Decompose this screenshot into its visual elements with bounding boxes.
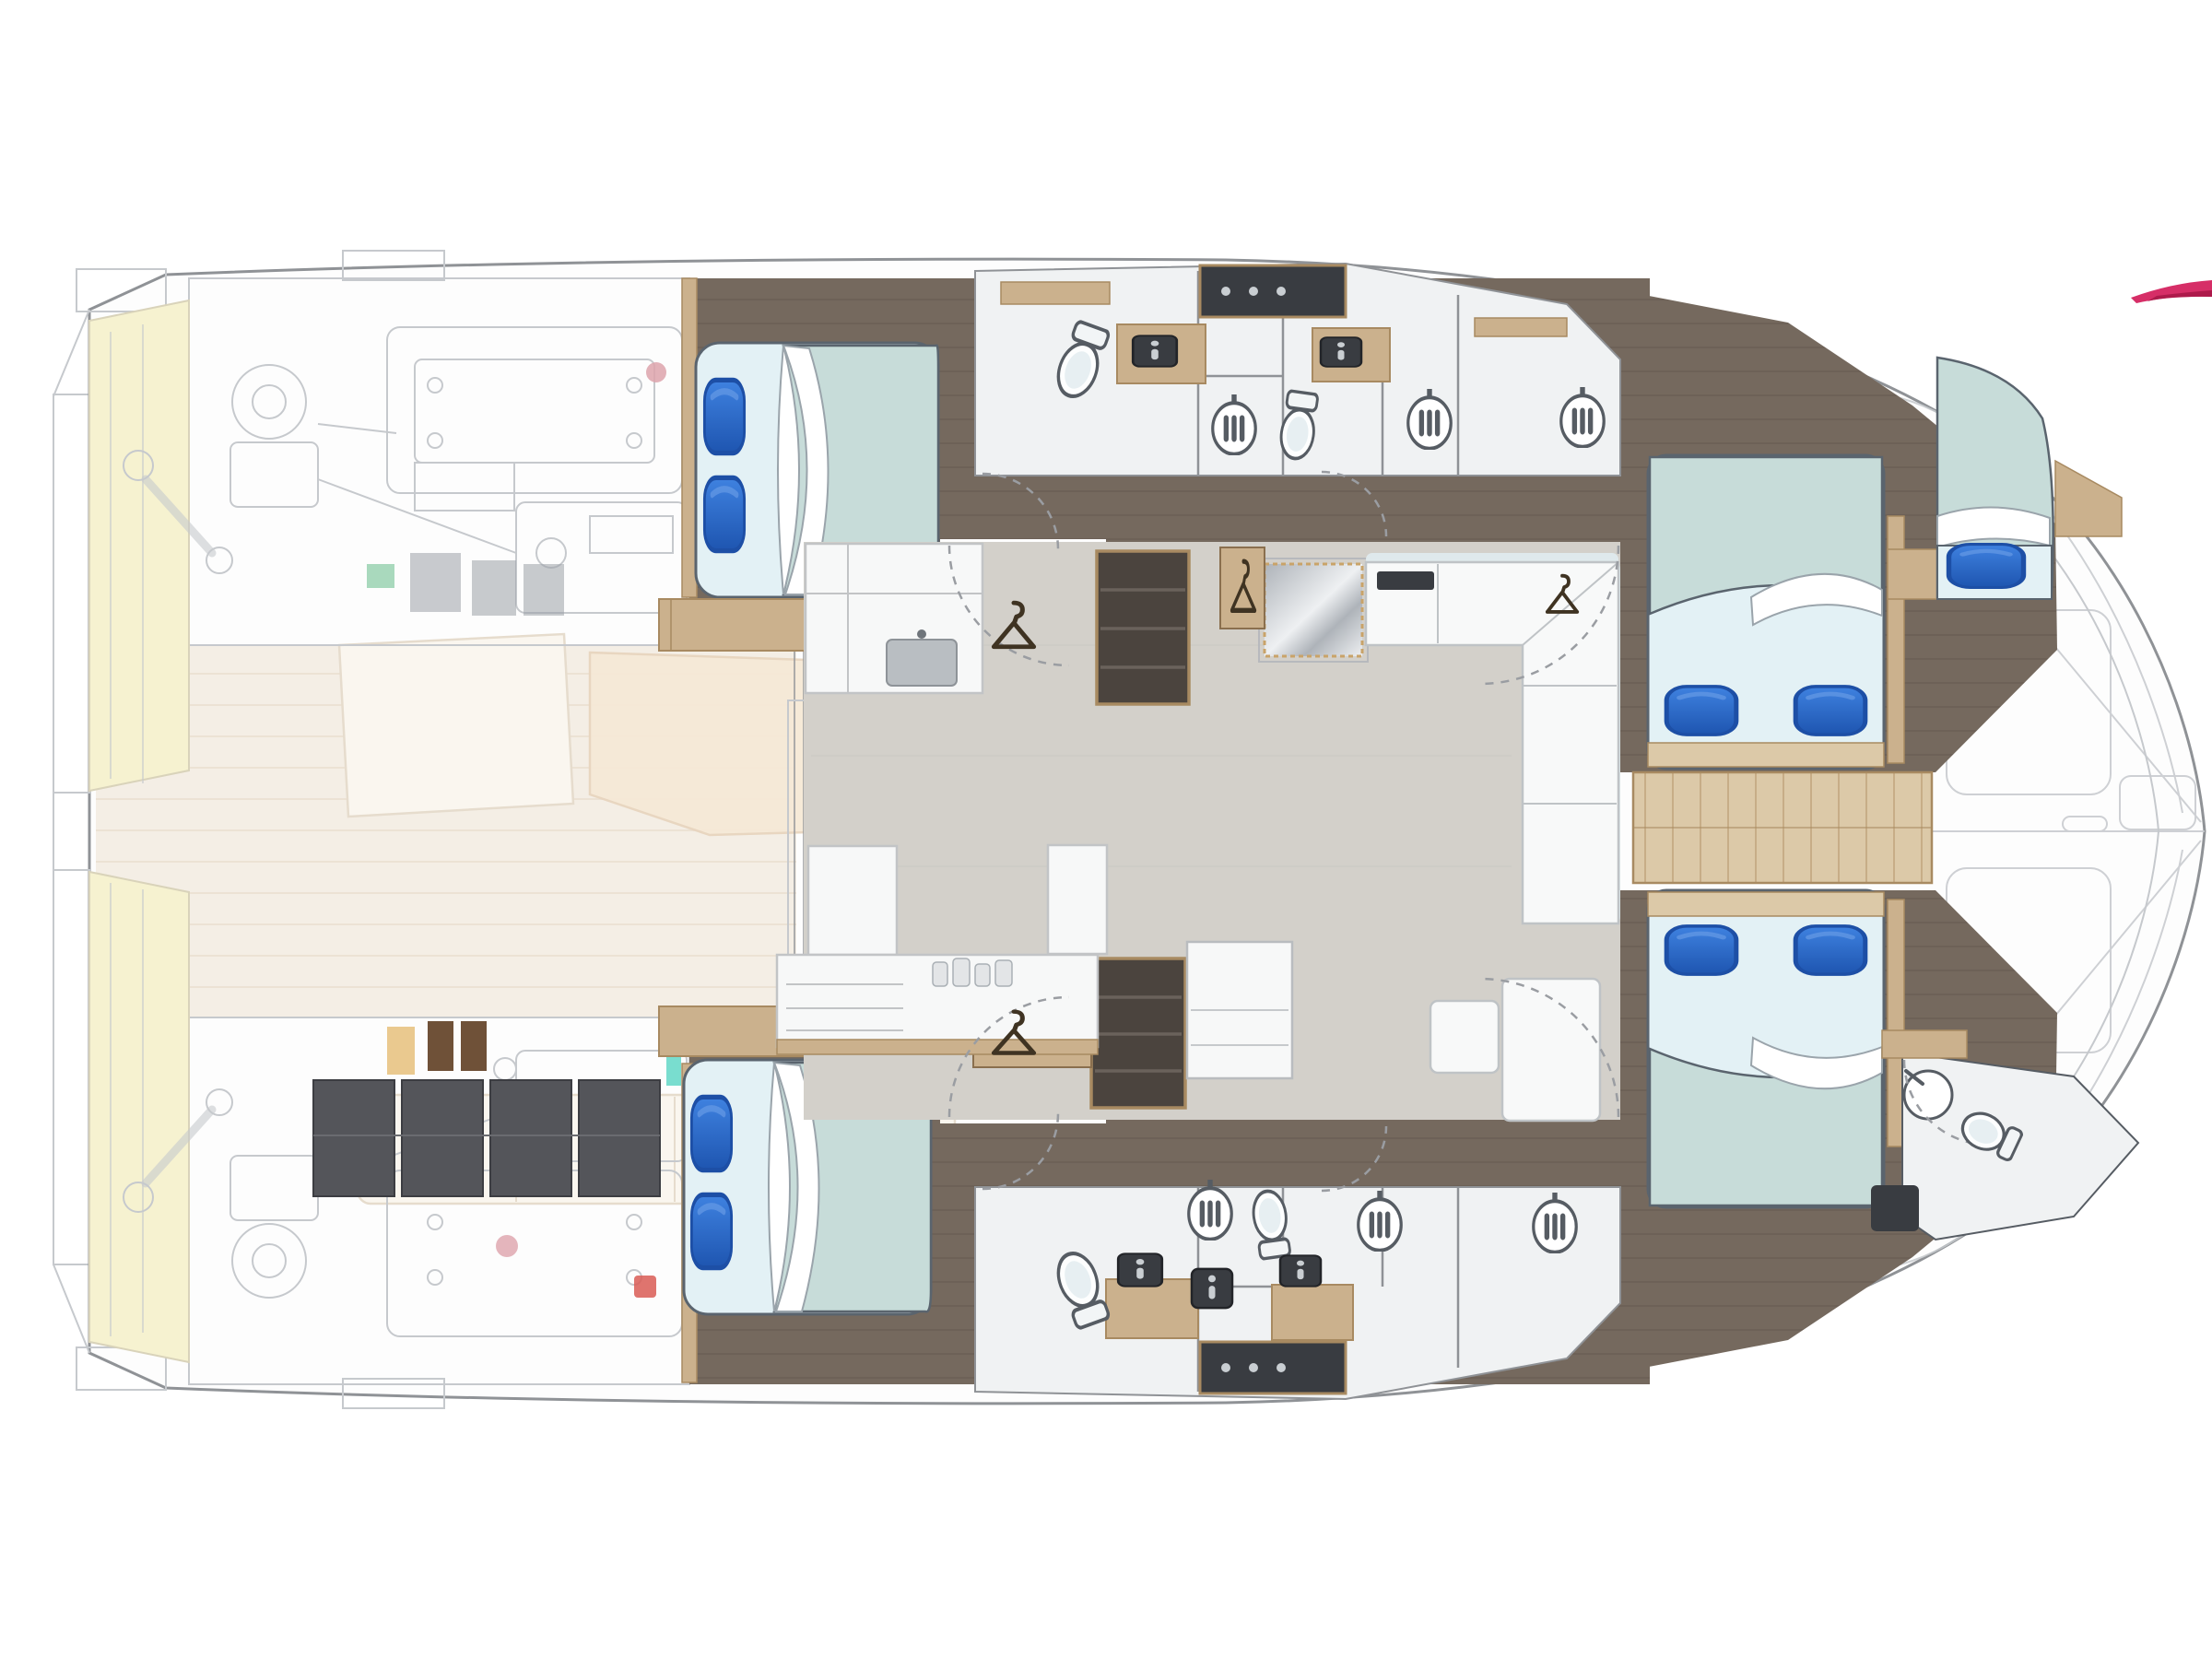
- bow-shelf: [2055, 461, 2122, 536]
- shelf: [1001, 282, 1110, 304]
- vanity-counter: [1272, 1285, 1353, 1340]
- equipment-green: [367, 564, 394, 588]
- stern-platform: [53, 394, 90, 1264]
- galley-column: [808, 846, 897, 955]
- pillow: [691, 1194, 731, 1267]
- pillow: [704, 477, 744, 550]
- pillow: [1949, 545, 2024, 588]
- ottoman: [1430, 1001, 1499, 1073]
- pillow: [1795, 687, 1865, 735]
- cockpit-bench-top: [339, 634, 573, 817]
- shelf: [1475, 318, 1567, 336]
- vanity-counter: [1106, 1279, 1198, 1338]
- sink-icon: [1280, 1255, 1321, 1286]
- pillow: [1795, 926, 1865, 974]
- catamaran-floor-plan: [0, 0, 2212, 1658]
- pillow: [1666, 926, 1736, 974]
- salon: [777, 542, 1620, 1121]
- floor-plan-page: [0, 0, 2212, 1658]
- equipment-red: [634, 1276, 656, 1298]
- headboard: [1648, 743, 1884, 767]
- equipment-pink: [646, 362, 666, 382]
- pillow: [691, 1097, 731, 1170]
- equipment-pink: [496, 1235, 518, 1257]
- mirror-table: [1265, 564, 1362, 656]
- equipment-brown: [461, 1021, 487, 1071]
- sink-icon: [1118, 1253, 1162, 1286]
- tray-dark: [1377, 571, 1434, 590]
- sink-icon: [1192, 1269, 1232, 1308]
- faucet-icon: [917, 629, 926, 639]
- sink-icon: [1133, 335, 1177, 366]
- equipment-brown: [428, 1021, 453, 1071]
- transom-steps: [89, 300, 189, 791]
- counter-edge: [777, 1040, 1098, 1054]
- sink-icon: [1321, 337, 1361, 367]
- headboard: [1648, 892, 1884, 916]
- brand-swoosh: [2131, 280, 2212, 303]
- lounge-seat: [1502, 979, 1600, 1121]
- locker-dark: [1871, 1185, 1919, 1231]
- wet-bar-sink: [887, 640, 957, 686]
- shelf: [1882, 1030, 1967, 1058]
- transom-steps: [89, 872, 189, 1362]
- pillow: [704, 380, 744, 453]
- galley-column: [1048, 845, 1107, 954]
- pillow: [1666, 687, 1736, 735]
- equipment-tan: [387, 1027, 415, 1075]
